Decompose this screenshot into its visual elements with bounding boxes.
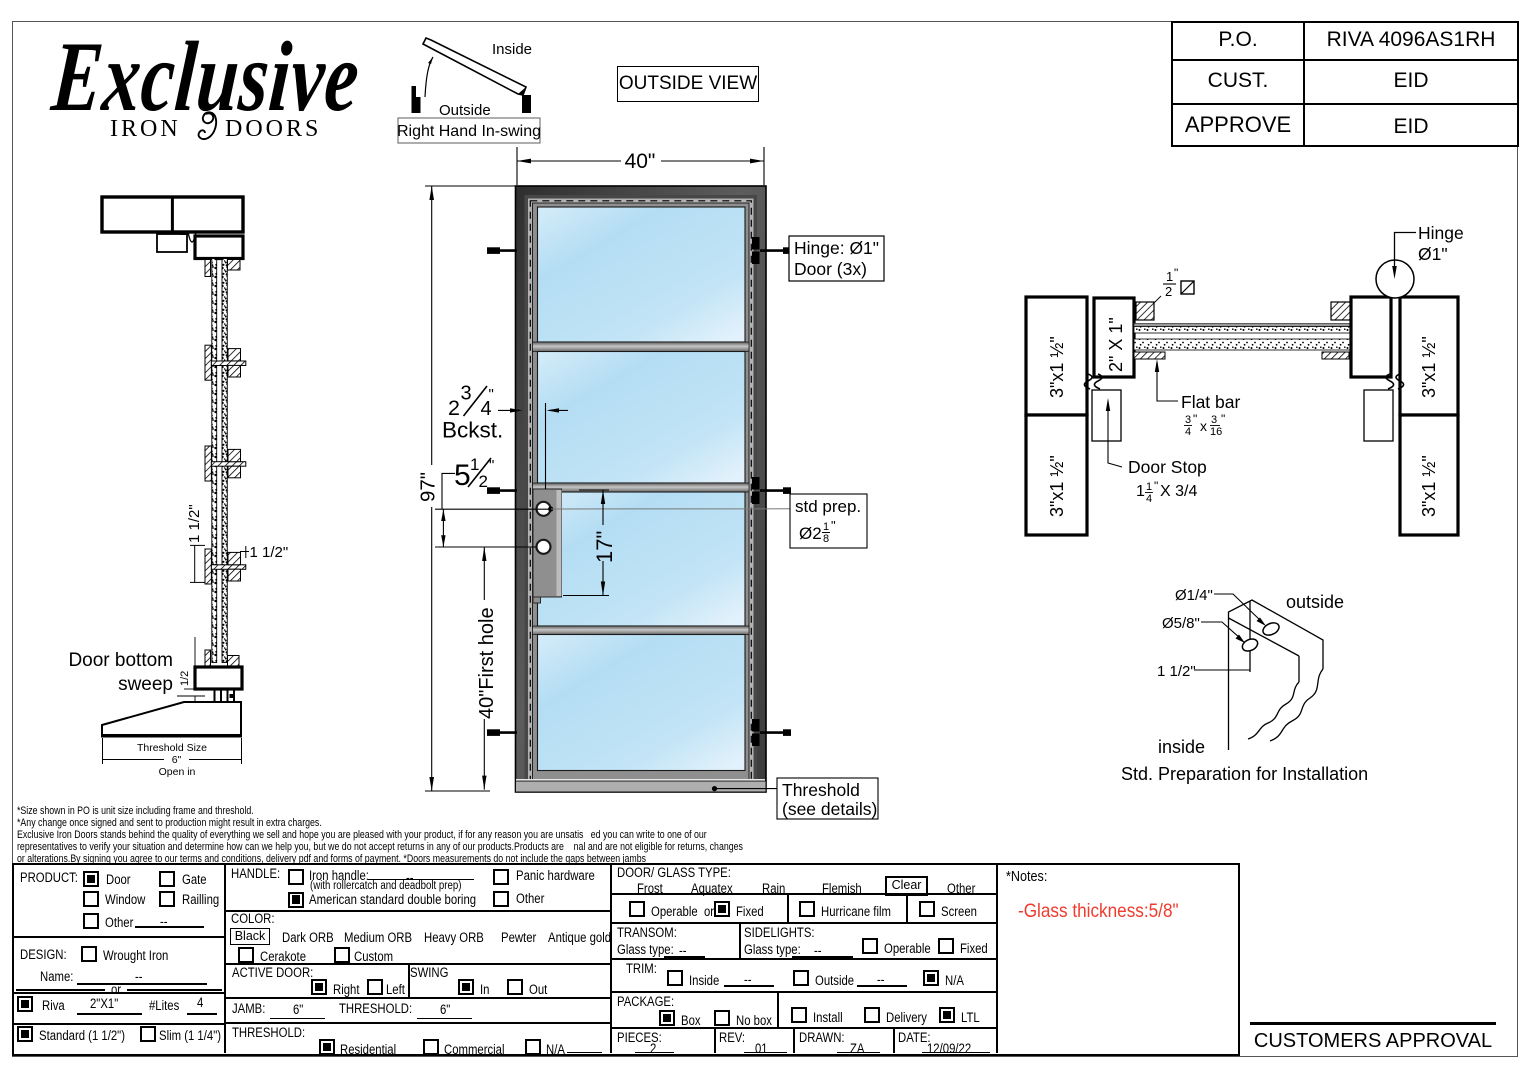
svg-text:17": 17" xyxy=(592,531,617,563)
svg-text:Door bottom: Door bottom xyxy=(68,650,173,671)
svg-text:Ø5/8": Ø5/8" xyxy=(1162,615,1200,632)
svg-text:3"x1 ½": 3"x1 ½" xyxy=(1047,455,1067,517)
svg-text:X 3/4: X 3/4 xyxy=(1160,483,1197,500)
svg-text:Hinge: Hinge xyxy=(1418,223,1464,243)
svg-text:1 1/2": 1 1/2" xyxy=(1157,663,1196,680)
svg-text:Door (3x): Door (3x) xyxy=(794,259,867,279)
svg-text:8: 8 xyxy=(823,533,829,545)
svg-text:1: 1 xyxy=(1146,481,1152,493)
svg-text:Inside: Inside xyxy=(492,41,532,58)
svg-text:Threshold Size: Threshold Size xyxy=(137,742,207,754)
svg-text:1 1/2": 1 1/2" xyxy=(250,544,289,561)
svg-text:2" X 1": 2" X 1" xyxy=(1106,317,1126,372)
svg-text:40": 40" xyxy=(625,150,656,173)
svg-text:Open in: Open in xyxy=(159,766,196,778)
svg-text:4: 4 xyxy=(1146,493,1152,505)
svg-text:": " xyxy=(1174,266,1178,280)
svg-text:1/2: 1/2 xyxy=(179,671,191,686)
svg-text:Std. Preparation for Installat: Std. Preparation for Installation xyxy=(1121,764,1368,784)
svg-text:Ø1": Ø1" xyxy=(1418,244,1448,264)
svg-text:40"First hole: 40"First hole xyxy=(476,607,498,719)
svg-text:IRON: IRON xyxy=(110,116,181,142)
svg-text:sweep: sweep xyxy=(118,674,173,695)
svg-text:2: 2 xyxy=(479,472,488,491)
svg-text:4: 4 xyxy=(1185,426,1191,438)
svg-text:Outside: Outside xyxy=(439,102,491,119)
svg-text:3"x1 ½": 3"x1 ½" xyxy=(1419,336,1439,398)
svg-text:Ø2: Ø2 xyxy=(799,524,822,543)
svg-text:6": 6" xyxy=(172,754,182,766)
svg-text:1: 1 xyxy=(1166,269,1173,284)
svg-text:1 1/2": 1 1/2" xyxy=(186,504,203,543)
svg-text:outside: outside xyxy=(1286,592,1344,612)
svg-text:": " xyxy=(1154,479,1158,493)
svg-text:97": 97" xyxy=(417,472,440,502)
svg-text:Ø1/4": Ø1/4" xyxy=(1175,587,1213,604)
svg-text:3: 3 xyxy=(461,383,472,405)
svg-text:": " xyxy=(1193,412,1197,426)
svg-text:inside: inside xyxy=(1158,737,1205,757)
svg-text:Threshold: Threshold xyxy=(782,780,860,800)
svg-text:2: 2 xyxy=(448,396,460,420)
svg-text:Hinge: Ø1": Hinge: Ø1" xyxy=(794,238,879,258)
svg-text:": " xyxy=(1221,412,1225,426)
svg-text:": " xyxy=(831,518,836,533)
svg-text:Bckst.: Bckst. xyxy=(442,418,503,443)
svg-text:Right Hand In-swing: Right Hand In-swing xyxy=(397,123,541,140)
svg-text:3"x1 ½": 3"x1 ½" xyxy=(1047,336,1067,398)
svg-text:std prep.: std prep. xyxy=(795,497,861,516)
svg-text:1: 1 xyxy=(1136,483,1145,500)
svg-text:3: 3 xyxy=(1185,414,1191,426)
svg-text:x: x xyxy=(1200,418,1207,434)
svg-text:3: 3 xyxy=(1211,414,1217,426)
svg-text:DOORS: DOORS xyxy=(225,116,321,142)
svg-text:": " xyxy=(489,386,494,403)
svg-text:3"x1 ½": 3"x1 ½" xyxy=(1419,455,1439,517)
svg-text:2: 2 xyxy=(1165,284,1172,299)
svg-text:Flat bar: Flat bar xyxy=(1181,392,1240,412)
svg-text:1: 1 xyxy=(823,521,829,533)
svg-text:Door Stop: Door Stop xyxy=(1128,457,1207,477)
svg-text:16: 16 xyxy=(1210,426,1222,438)
